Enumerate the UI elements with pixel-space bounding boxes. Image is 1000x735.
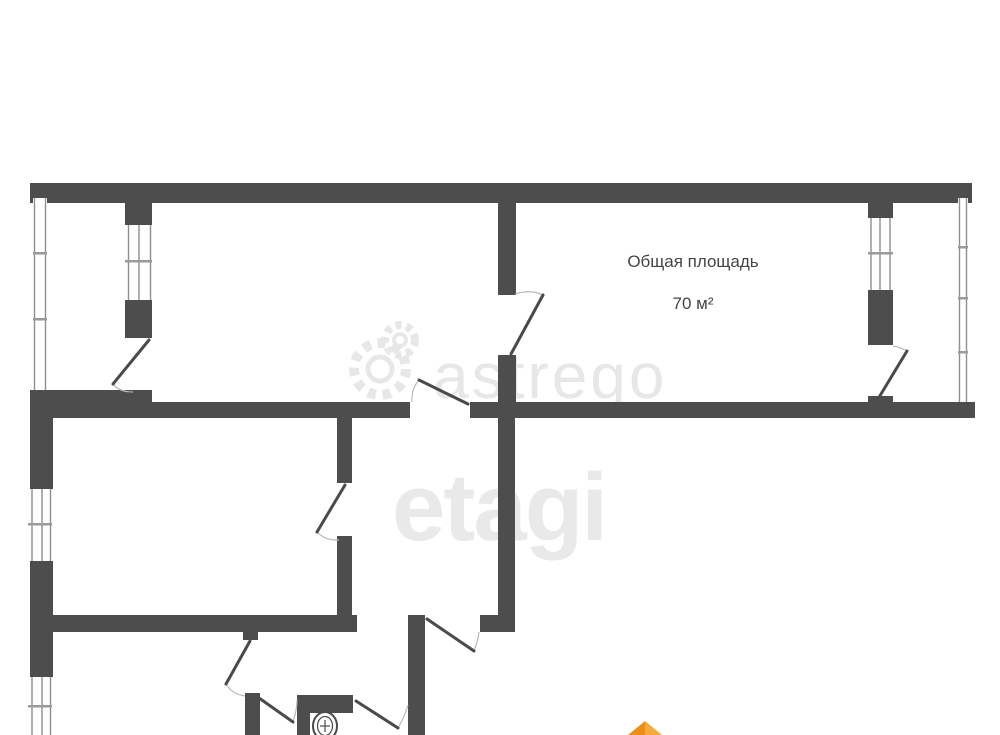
door-mid-room-door: [317, 485, 345, 540]
door-wc-door: [259, 698, 297, 722]
wall-left-exterior-upper: [30, 403, 53, 489]
wall-hall-bottom-block: [480, 615, 515, 632]
wall-mid-divider-top: [337, 418, 352, 483]
plan-layer: [28, 183, 975, 735]
door-bath-door: [356, 701, 408, 728]
wall-wc-left-wall: [297, 695, 310, 735]
watermark-astrego-text: astrego: [433, 340, 667, 412]
watermark-gear-hub-icon: [394, 334, 406, 346]
wall-lower-left-wall: [245, 693, 260, 735]
wall-door-hinge-block: [243, 630, 258, 640]
wall-top-rooms-divider-upper: [498, 183, 516, 295]
label-layer: Общая площадь 70 м²: [627, 252, 758, 313]
window-left-balcony-room-window: [125, 225, 152, 300]
wall-left-balcony-divider-top: [125, 183, 152, 225]
window-mid-room-window: [28, 489, 52, 561]
wall-hall-right-wall: [498, 418, 515, 617]
floorplan-canvas: astrego etagi Общая площадь 70 м²: [0, 0, 1000, 735]
watermark-gear-icon: [354, 343, 406, 395]
wall-band-bottom-left: [30, 402, 410, 418]
door-left-balcony-door: [113, 340, 149, 392]
window-right-balcony-glazing: [958, 198, 968, 402]
toilet-icon: [313, 712, 337, 735]
wall-mid-bottom-wall: [30, 615, 357, 632]
window-right-room-window: [868, 218, 893, 290]
door-lower-left-room-door: [226, 641, 250, 696]
wall-right-room-wall-top: [868, 197, 893, 218]
floorplan-svg: astrego etagi Общая площадь 70 м²: [0, 0, 1000, 735]
total-area-title: Общая площадь: [627, 252, 758, 271]
window-left-balcony-glazing: [33, 198, 47, 390]
total-area-value: 70 м²: [673, 294, 714, 313]
wall-lower-right-wall: [408, 615, 425, 735]
wall-mid-divider-bottom: [337, 536, 352, 617]
door-bottom-right-room-door: [427, 619, 479, 651]
logo-triangle-left-icon: [628, 721, 645, 735]
wall-top-rooms-divider-lower: [498, 355, 516, 403]
window-lower-room-window: [28, 677, 52, 735]
logo-triangle-right-icon: [645, 721, 662, 735]
watermark-gear-icon: [385, 325, 415, 355]
wall-left-balcony-divider-mid: [125, 300, 152, 338]
watermark-gear-hub-icon: [368, 357, 392, 381]
wall-right-room-wall-mid: [868, 290, 893, 345]
wall-band-bottom-right: [470, 402, 975, 418]
door-right-balcony-door: [878, 346, 907, 399]
